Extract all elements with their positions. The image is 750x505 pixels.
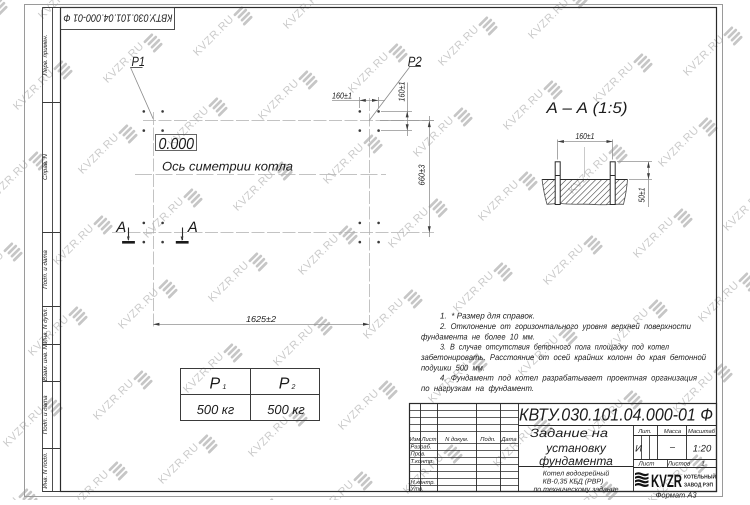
svg-text:50±1: 50±1 (636, 187, 646, 202)
svg-text:Лит.: Лит. (637, 429, 652, 435)
svg-text:забетонировать. Расстояние о: забетонировать. Расстояние от осей крайн… (420, 352, 706, 362)
svg-text:N докум.: N докум. (445, 436, 468, 443)
svg-text:Инв. N дубл.: Инв. N дубл. (42, 308, 49, 344)
svg-text:Перв. примен.: Перв. примен. (42, 34, 49, 75)
svg-text:1: 1 (701, 461, 704, 468)
svg-text:1. * Размер для справок.: 1. * Размер для справок. (440, 311, 535, 321)
svg-text:500 кг: 500 кг (267, 402, 305, 417)
svg-text:Н.контр.: Н.контр. (411, 480, 436, 486)
svg-text:1:20: 1:20 (693, 444, 712, 455)
svg-text:P1: P1 (132, 54, 146, 69)
svg-text:по техническому задание: по техническому задание (533, 485, 618, 493)
svg-text:–: – (669, 442, 676, 452)
svg-text:KVZR: KVZR (651, 471, 682, 491)
svg-text:2: 2 (291, 384, 296, 391)
svg-text:Т.контр.: Т.контр. (411, 459, 434, 465)
svg-text:4. Фундамент под котел раз: 4. Фундамент под котел разрабатывает про… (440, 373, 698, 383)
svg-text:установку: установку (545, 441, 607, 455)
svg-text:1: 1 (223, 384, 227, 391)
svg-text:КВТУ.030.101.04.000-01 Ф: КВТУ.030.101.04.000-01 Ф (64, 11, 173, 23)
svg-text:Лист: Лист (638, 461, 655, 468)
svg-text:Лист: Лист (421, 437, 437, 443)
svg-text:Утв.: Утв. (410, 486, 424, 492)
svg-text:КВ-0,35 КБД (РВР): КВ-0,35 КБД (РВР) (543, 478, 604, 486)
svg-text:Листов: Листов (667, 461, 691, 468)
svg-text:Котел водогрейный: Котел водогрейный (543, 470, 610, 478)
svg-text:3. В случае отсутствия бет: 3. В случае отсутствия бетонного пола пл… (440, 342, 669, 352)
svg-text:фундамента: фундамента (539, 454, 613, 468)
svg-text:Масштаб: Масштаб (688, 428, 716, 435)
svg-text:А: А (115, 219, 126, 236)
svg-text:Ось симетрии котла: Ось симетрии котла (162, 159, 293, 173)
svg-text:А – А (1:5): А – А (1:5) (545, 100, 627, 117)
svg-text:КВТУ.030.101.04.000-01 Ф: КВТУ.030.101.04.000-01 Ф (519, 405, 713, 425)
svg-text:Инв. N подл.: Инв. N подл. (42, 452, 49, 488)
svg-text:подушки 500 мм.: подушки 500 мм. (421, 362, 485, 372)
svg-text:Формат А3: Формат А3 (655, 491, 697, 500)
svg-text:Р: Р (210, 376, 221, 393)
svg-text:Р: Р (279, 376, 290, 393)
svg-text:Дата: Дата (500, 437, 517, 443)
svg-text:Справ. N: Справ. N (42, 154, 49, 180)
svg-text:ЗАВОД РЭП: ЗАВОД РЭП (684, 483, 713, 489)
svg-text:160±1: 160±1 (576, 131, 595, 141)
svg-text:0.000: 0.000 (159, 136, 195, 153)
svg-text:КОТЕЛЬНЫЙ: КОТЕЛЬНЫЙ (684, 473, 716, 481)
svg-text:А: А (187, 219, 198, 236)
svg-text:Задание на: Задание на (530, 426, 608, 440)
svg-text:И: И (635, 444, 642, 455)
svg-text:фундамента не более 10 мм.: фундамента не более 10 мм. (421, 331, 535, 341)
svg-text:Подп. и дата: Подп. и дата (42, 250, 49, 289)
svg-text:по нагрузкам на фундамент.: по нагрузкам на фундамент. (421, 383, 534, 393)
svg-text:160±1: 160±1 (332, 91, 352, 101)
svg-text:Взам. инв. N: Взам. инв. N (42, 344, 49, 381)
svg-text:Подп.: Подп. (480, 436, 495, 443)
svg-text:1625±2: 1625±2 (246, 314, 276, 324)
svg-text:Пров.: Пров. (411, 452, 426, 458)
svg-text:2. Отклонение от горизонтал: 2. Отклонение от горизонтального уровня … (439, 321, 691, 331)
svg-text:Подп. и дата: Подп. и дата (42, 395, 49, 434)
svg-text:500 кг: 500 кг (197, 402, 235, 417)
svg-text:Изм: Изм (410, 437, 421, 443)
svg-text:660±3: 660±3 (416, 164, 426, 185)
svg-text:Разраб.: Разраб. (411, 444, 432, 451)
svg-text:160±1: 160±1 (397, 81, 407, 101)
svg-text:Масса: Масса (664, 429, 682, 435)
